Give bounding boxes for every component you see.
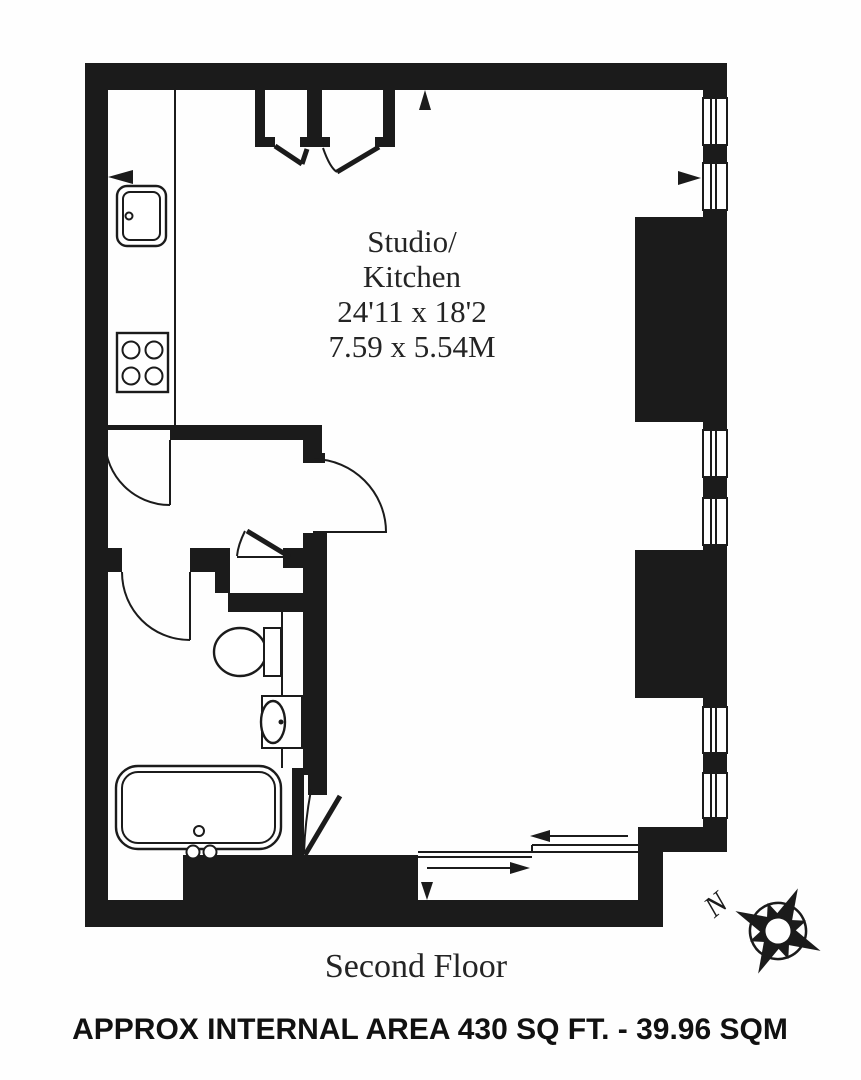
measure-arrow-up [419, 90, 431, 110]
window-icon [703, 773, 727, 818]
measure-arrow-left [108, 170, 133, 184]
window-icon [703, 707, 727, 753]
floorplan-page: N Studio/ Kitchen 24'11 x 18'2 7.59 x 5.… [0, 0, 861, 1080]
window-icon [703, 498, 727, 545]
wash-basin-icon [261, 696, 302, 748]
closet-doors [275, 146, 379, 172]
hob-icon [117, 333, 168, 392]
hall-door [105, 440, 170, 505]
compass-north-label: N [697, 884, 736, 924]
window-icon [703, 430, 727, 477]
kitchen-sink-icon [117, 186, 166, 246]
floorplan-drawing: N Studio/ Kitchen 24'11 x 18'2 7.59 x 5.… [0, 0, 861, 1080]
chimney-breast-upper [635, 217, 703, 422]
stair-direction-arrow-left [530, 830, 628, 842]
bathroom-door [122, 572, 190, 640]
cupboard-door [237, 531, 290, 557]
room-label: Studio/ Kitchen 24'11 x 18'2 7.59 x 5.54… [328, 224, 495, 364]
window-icon [703, 163, 727, 210]
room-label-line2: Kitchen [363, 259, 462, 294]
measure-arrow-down [421, 882, 433, 900]
chimney-breast-lower [635, 550, 703, 698]
lower-door [304, 790, 340, 855]
compass-rose-icon [727, 880, 829, 982]
stair-direction-arrow-right [427, 862, 530, 874]
stairs [418, 830, 638, 874]
room-dimensions-imperial: 24'11 x 18'2 [337, 294, 487, 329]
bathtub-icon [116, 766, 281, 859]
area-caption: APPROX INTERNAL AREA 430 SQ FT. - 39.96 … [72, 1013, 788, 1046]
room-dimensions-metric: 7.59 x 5.54M [328, 329, 495, 364]
studio-door [313, 459, 387, 532]
toilet-icon [214, 628, 281, 676]
windows [703, 98, 727, 818]
window-icon [703, 98, 727, 145]
room-label-line1: Studio/ [367, 224, 457, 259]
doors [105, 146, 387, 855]
floor-label: Second Floor [325, 948, 508, 985]
measure-arrow-right [678, 171, 701, 185]
